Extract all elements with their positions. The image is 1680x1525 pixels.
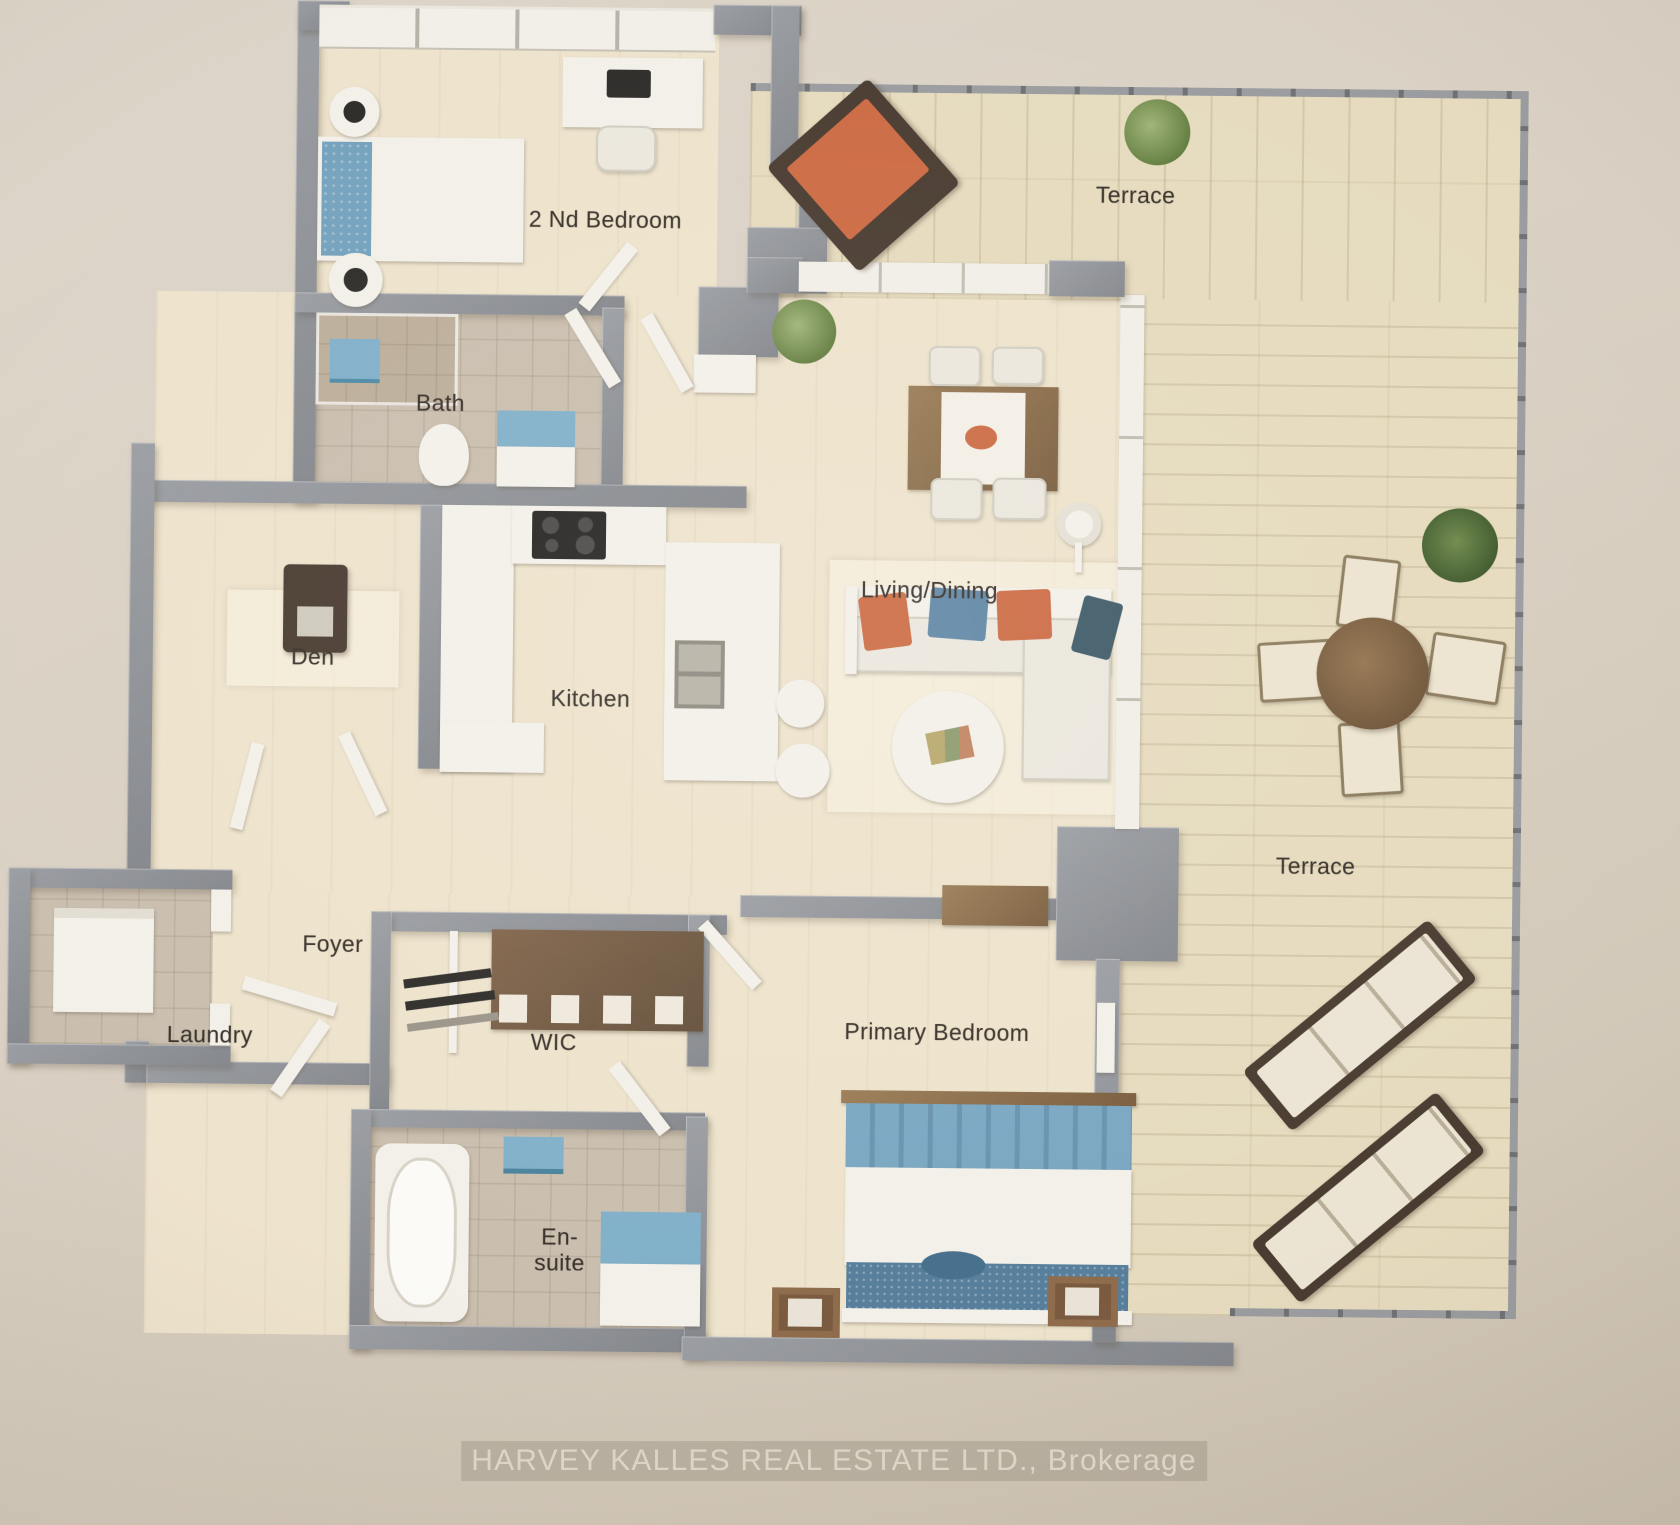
- floorplan: 2 Nd Bedroom Terrace Bath Den Kitchen Li…: [0, 0, 1680, 1525]
- bedside-table-top: [344, 268, 368, 292]
- wall-stub: [747, 257, 803, 294]
- window-band-bedroom: [319, 5, 715, 53]
- laptop-icon: [607, 70, 651, 98]
- brokerage-watermark: HARVEY KALLES REAL ESTATE LTD., Brokerag…: [461, 1441, 1207, 1481]
- room-label-ensuite-line1: En-: [534, 1224, 585, 1250]
- wall-wic: [369, 911, 391, 1111]
- wall: [126, 443, 155, 873]
- bed-foot-throw: [845, 1103, 1132, 1170]
- plant: [772, 299, 837, 364]
- nightstand-frame: [788, 1298, 822, 1326]
- wall-ensuite: [349, 1325, 705, 1353]
- towel-stack: [330, 339, 380, 380]
- wall: [698, 286, 779, 357]
- wall-block: [1056, 826, 1179, 961]
- room-label-terrace-top: Terrace: [1096, 183, 1176, 210]
- kitchen-counter: [440, 722, 545, 773]
- dining-chair: [929, 346, 981, 387]
- pillows-second-bed: [321, 142, 372, 257]
- throw-pillow: [996, 589, 1052, 641]
- window-primary: [1096, 1003, 1115, 1073]
- dining-chair: [930, 478, 982, 521]
- bath-vanity: [497, 446, 575, 487]
- dining-chair: [992, 347, 1044, 386]
- terrace-chair: [1424, 631, 1507, 705]
- floorplan-photo: 2 Nd Bedroom Terrace Bath Den Kitchen Li…: [0, 0, 1680, 1525]
- wall-stub: [211, 889, 231, 931]
- bolster-cushion: [921, 1251, 985, 1280]
- dining-chair: [992, 478, 1046, 521]
- office-chair-seat: [297, 606, 333, 636]
- sofa-arm: [845, 586, 858, 674]
- room-label-kitchen: Kitchen: [550, 686, 630, 713]
- wall-ensuite: [349, 1109, 372, 1349]
- side-table: [776, 679, 825, 728]
- room-label-foyer: Foyer: [302, 932, 363, 958]
- room-label-ensuite: En- suite: [534, 1224, 585, 1276]
- wall: [418, 505, 443, 769]
- wall-stub: [1049, 260, 1125, 297]
- room-label-living-dining: Living/Dining: [861, 577, 998, 604]
- room-label-primary-bedroom: Primary Bedroom: [844, 1019, 1029, 1047]
- room-label-terrace-right: Terrace: [1276, 854, 1356, 881]
- wall-laundry: [8, 867, 232, 889]
- wall-cap: [694, 354, 756, 393]
- room-label-second-bedroom: 2 Nd Bedroom: [529, 207, 682, 234]
- kitchen-sink-divider: [675, 671, 725, 677]
- laundry-appliance: [53, 908, 154, 1013]
- room-label-laundry: Laundry: [167, 1022, 253, 1049]
- bed-duvet: [844, 1167, 1131, 1268]
- wall-primary-bottom: [681, 1336, 1233, 1366]
- terrace-railing-bottom: [1230, 1308, 1516, 1319]
- flower-centerpiece: [965, 425, 997, 449]
- desk-chair: [596, 125, 656, 172]
- wall: [601, 307, 625, 487]
- bath-vanity-top: [497, 410, 575, 447]
- room-label-den: Den: [291, 644, 335, 670]
- nightstand-frame: [1065, 1287, 1099, 1315]
- terrace-round-table: [1316, 617, 1429, 730]
- sliding-door-band-top-terrace: [799, 262, 1051, 295]
- side-table: [775, 743, 830, 798]
- ensuite-vanity-top: [600, 1212, 701, 1269]
- floor-lamp: [1057, 502, 1101, 546]
- toilet: [419, 424, 470, 487]
- plant: [1422, 508, 1499, 583]
- plant: [1124, 99, 1191, 166]
- towel-shelf: [503, 1137, 563, 1170]
- bedside-table-top: [343, 101, 365, 123]
- dresser-drawers: [499, 994, 695, 1024]
- sideboard: [942, 885, 1048, 926]
- wall-laundry: [6, 867, 30, 1063]
- room-label-ensuite-line2: suite: [534, 1250, 585, 1276]
- stove-cooktop: [532, 511, 606, 560]
- terrace-chair: [1338, 720, 1404, 798]
- floor-lamp-stem: [1075, 542, 1082, 572]
- room-label-bath: Bath: [416, 391, 465, 417]
- room-label-wic: WIC: [531, 1030, 577, 1056]
- closet-pole: [449, 931, 458, 1053]
- bathtub-basin: [386, 1157, 458, 1308]
- ensuite-vanity: [600, 1264, 701, 1327]
